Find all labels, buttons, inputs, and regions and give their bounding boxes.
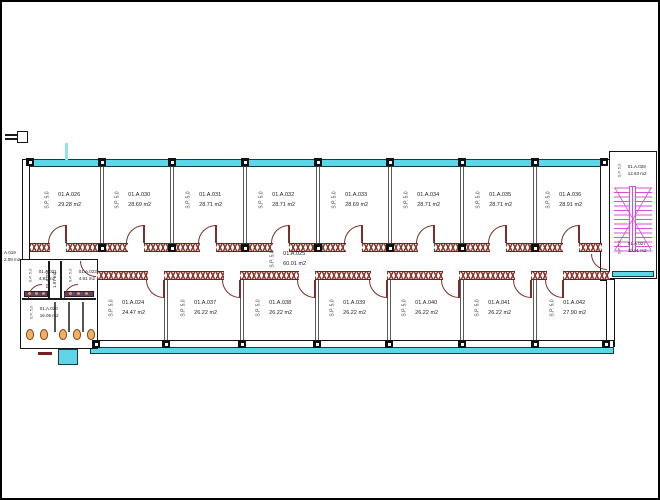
room-id: 01.A.020 <box>40 305 59 312</box>
door-arc <box>222 280 240 298</box>
room-label: S.P. 5,0 01.A.03128.71 m2 <box>180 190 222 211</box>
column-marker <box>386 158 394 166</box>
door-arc <box>369 280 387 298</box>
annex-partition-vertical <box>60 261 62 299</box>
room-label: S.P. 5,0 01.A.03228.71 m2 <box>253 190 295 211</box>
column-marker <box>168 244 176 252</box>
washbasin-dot <box>77 292 80 295</box>
hatched-partition <box>240 271 299 280</box>
corridor-label: S.P. 5,0 01.A.02560.01 m2 <box>264 249 306 270</box>
door-leaf <box>361 225 363 243</box>
column-marker <box>238 340 246 348</box>
door-leaf <box>239 280 241 298</box>
ceiling-height-note: S.P. 5,0 <box>270 251 276 268</box>
stairwell-label: S.P. 5,0 01.A.02812.63 m2 <box>612 163 646 177</box>
washbasin-dot <box>28 292 31 295</box>
room-id: 01.A.037 <box>194 298 217 308</box>
column-marker <box>458 340 466 348</box>
room-label: S.P. 5,0 01.A.04227.90 m2 <box>544 298 586 319</box>
ceiling-height-note: S.P. 5,0 <box>476 192 482 209</box>
hatched-partition <box>30 243 50 252</box>
partition-wall <box>460 280 464 340</box>
exterior-wall-right-lower <box>606 279 615 347</box>
door-arc <box>513 280 531 298</box>
exterior-wall-bottom-accent <box>90 347 614 354</box>
room-id: 01.A.023 <box>79 268 97 275</box>
column-marker <box>458 244 466 252</box>
ceiling-height-note: S.P. 5,0 <box>330 300 336 317</box>
room-area: 2.09 m2 <box>4 256 20 263</box>
room-id: A.019 <box>4 249 20 256</box>
room-area: 26.22 m2 <box>488 308 511 318</box>
door-arc <box>441 280 459 298</box>
door-leaf <box>65 225 67 243</box>
stair-lobby-label: S.P. 5,0 01.A.02710.01 m2 <box>612 240 646 254</box>
door-arc-stair-entry <box>591 254 607 270</box>
ceiling-height-note: S.P. 5,0 <box>186 192 192 209</box>
room-area: 12.63 m2 <box>628 170 647 177</box>
stairwell-accent-strip <box>612 271 654 277</box>
room-area: 29.28 m2 <box>58 200 81 210</box>
room-id: 01.A.041 <box>488 298 511 308</box>
room-id: 01.A.040 <box>415 298 438 308</box>
door-leaf <box>578 225 580 243</box>
toilet-fixture <box>26 329 34 340</box>
hatched-partition <box>579 243 602 252</box>
door-arc <box>126 225 144 243</box>
partition-wall <box>533 280 537 340</box>
floor-plan-canvas: S.P. 5,0 01.A.02629.28 m2 S.P. 5,0 01.A.… <box>0 0 660 500</box>
room-id: 01.A.034 <box>417 190 440 200</box>
room-id: 01.A.026 <box>58 190 81 200</box>
door-leaf <box>288 225 290 243</box>
room-area: 16.06 m2 <box>40 312 59 319</box>
annex-outside-label: A.0192.09 m2 <box>4 249 20 263</box>
hatched-partition <box>66 243 128 252</box>
room-label: S.P. 5,0 01.A.04126.22 m2 <box>469 298 511 319</box>
partition-wall <box>316 167 320 243</box>
toilet-fixture <box>40 329 48 340</box>
room-id: 01.A.036 <box>559 190 582 200</box>
room-area: 26.22 m2 <box>343 308 366 318</box>
door-arc <box>416 225 434 243</box>
column-marker <box>314 158 322 166</box>
door-arc <box>198 225 216 243</box>
door-leaf <box>163 280 165 298</box>
partition-wall <box>170 167 174 243</box>
column-marker <box>602 340 610 348</box>
entry-canopy-line <box>5 134 17 136</box>
room-label: S.P. 5,0 01.A.03726.22 m2 <box>175 298 217 319</box>
ceiling-height-note: S.P. 5,0 <box>332 192 338 209</box>
exterior-wall-left <box>22 159 30 265</box>
partition-wall <box>388 167 392 243</box>
door-leaf <box>458 280 460 298</box>
room-area: 1.97 m2 <box>51 270 58 288</box>
annex-room-label: S.P. 5,0 01.A.0234.91 m2 <box>63 268 97 282</box>
partition-wall <box>100 167 104 243</box>
ceiling-height-note: S.P. 5,0 <box>550 300 556 317</box>
ceiling-height-note: S.P. 5,0 <box>616 240 621 254</box>
ceiling-height-note: S.P. 5,0 <box>259 192 265 209</box>
door-leaf <box>314 280 316 298</box>
column-marker <box>531 158 539 166</box>
room-id: 01.A.030 <box>128 190 151 200</box>
room-area: 28.71 m2 <box>272 200 295 210</box>
ceiling-height-note: S.P. 5,0 <box>27 268 32 282</box>
ceiling-height-note: S.P. 5,0 <box>109 300 115 317</box>
hatched-partition <box>531 271 547 280</box>
annex-room-label: S.P. 5,0 01.A.02016.06 m2 <box>24 305 58 319</box>
entry-canopy-line <box>5 138 17 140</box>
room-id: 01.A.028 <box>628 163 647 170</box>
door-leaf <box>386 280 388 298</box>
room-label: S.P. 5,0 01.A.03428.71 m2 <box>398 190 440 211</box>
column-marker <box>314 244 322 252</box>
door-leaf <box>215 225 217 243</box>
room-label: S.P. 5,0 01.A.03628.91 m2 <box>540 190 582 211</box>
room-id: 01.A.033 <box>345 190 368 200</box>
room-label: S.P. 5,0 01.A.03328.69 m2 <box>326 190 368 211</box>
room-area: 28.71 m2 <box>199 200 222 210</box>
ceiling-height-note: S.P. 5,0 <box>402 300 408 317</box>
partition-wall <box>460 167 464 243</box>
door-leaf <box>530 280 532 298</box>
door-leaf <box>143 225 145 243</box>
door-leaf <box>433 225 435 243</box>
room-id: 01.A.042 <box>563 298 586 308</box>
room-label: S.P. 5,0 01.A.04026.22 m2 <box>396 298 438 319</box>
door-arc <box>561 225 579 243</box>
washbasin-dot <box>35 292 38 295</box>
room-id: 01.A.024 <box>122 298 145 308</box>
ceiling-height-note: S.P. 5,0 <box>404 192 410 209</box>
room-area: 28.71 m2 <box>489 200 512 210</box>
room-id: 01.A.038 <box>269 298 292 308</box>
utility-riser-line <box>65 143 68 160</box>
room-id: 01.A.039 <box>343 298 366 308</box>
door-arc <box>146 280 164 298</box>
room-area: 28.69 m2 <box>128 200 151 210</box>
ceiling-height-note: S.P. 5,0 <box>475 300 481 317</box>
washbasin-dot <box>42 292 45 295</box>
hatched-partition <box>315 271 371 280</box>
room-id: 01.A.035 <box>489 190 512 200</box>
room-label: S.P. 5,0 01.A.03826.22 m2 <box>250 298 292 319</box>
room-area: 10.01 m2 <box>628 247 647 254</box>
entry-gate-symbol <box>17 131 28 143</box>
column-marker <box>92 340 100 348</box>
ceiling-height-note: S.P. 5,0 <box>28 305 33 319</box>
wc-stall-wall <box>68 302 70 332</box>
column-marker <box>98 244 106 252</box>
column-marker <box>241 158 249 166</box>
annex-partition-horizontal <box>22 298 96 300</box>
room-id: 01.A.022 <box>44 270 51 288</box>
annex-threshold-mark <box>38 352 52 355</box>
column-marker <box>98 158 106 166</box>
toilet-fixture <box>73 329 81 340</box>
ceiling-height-note: S.P. 5,0 <box>546 192 552 209</box>
hatched-partition <box>563 271 610 280</box>
room-area: 4.91 m2 <box>79 275 97 282</box>
hatched-partition <box>459 271 515 280</box>
ceiling-height-note: S.P. 5,0 <box>115 192 121 209</box>
column-marker <box>531 244 539 252</box>
room-label: S.P. 5,0 01.A.02629.28 m2 <box>39 190 81 211</box>
partition-wall <box>533 167 537 243</box>
ceiling-height-note: S.P. 5,0 <box>616 163 621 177</box>
toilet-fixture <box>87 329 95 340</box>
hatched-partition <box>164 271 224 280</box>
annex-room-label: 01.A.0221.97 m2 <box>44 270 58 288</box>
room-label: S.P. 5,0 01.A.03028.69 m2 <box>109 190 151 211</box>
room-area: 26.22 m2 <box>269 308 292 318</box>
room-area: 26.22 m2 <box>415 308 438 318</box>
toilet-fixture <box>59 329 67 340</box>
column-marker <box>168 158 176 166</box>
room-label: S.P. 5,0 01.A.03528.71 m2 <box>470 190 512 211</box>
door-arc <box>545 280 563 298</box>
ceiling-height-note: S.P. 5,0 <box>67 268 72 282</box>
room-id: 01.A.025 <box>283 249 306 259</box>
column-marker <box>385 340 393 348</box>
room-area: 28.69 m2 <box>345 200 368 210</box>
column-marker <box>313 340 321 348</box>
door-leaf <box>505 225 507 243</box>
door-arc <box>271 225 289 243</box>
column-marker <box>386 244 394 252</box>
room-area: 60.01 m2 <box>283 259 306 269</box>
room-label: S.P. 5,0 01.A.02424.47 m2 <box>103 298 145 319</box>
room-area: 27.90 m2 <box>563 308 586 318</box>
hatched-partition <box>387 271 443 280</box>
room-area: 24.47 m2 <box>122 308 145 318</box>
washbasin-dot <box>85 292 88 295</box>
column-marker <box>241 244 249 252</box>
ceiling-height-note: S.P. 5,0 <box>181 300 187 317</box>
ceiling-height-note: S.P. 5,0 <box>256 300 262 317</box>
column-marker <box>531 340 539 348</box>
column-marker <box>162 340 170 348</box>
column-marker <box>26 158 34 166</box>
door-arc <box>48 225 66 243</box>
room-id: 01.A.027 <box>628 240 647 247</box>
room-id: 01.A.032 <box>272 190 295 200</box>
room-area: 28.71 m2 <box>417 200 440 210</box>
partition-wall <box>243 167 247 243</box>
door-arc <box>297 280 315 298</box>
column-marker <box>458 158 466 166</box>
door-arc <box>344 225 362 243</box>
room-label: S.P. 5,0 01.A.03926.22 m2 <box>324 298 366 319</box>
room-id: 01.A.031 <box>199 190 222 200</box>
column-marker <box>600 158 608 166</box>
annex-entry-accent <box>58 349 78 365</box>
room-area: 26.22 m2 <box>194 308 217 318</box>
door-arc <box>488 225 506 243</box>
ceiling-height-note: S.P. 5,0 <box>45 192 51 209</box>
hatched-partition <box>97 271 148 280</box>
washbasin-dot <box>69 292 72 295</box>
wc-stall-wall <box>82 302 84 332</box>
room-area: 28.91 m2 <box>559 200 582 210</box>
door-leaf <box>562 280 564 298</box>
